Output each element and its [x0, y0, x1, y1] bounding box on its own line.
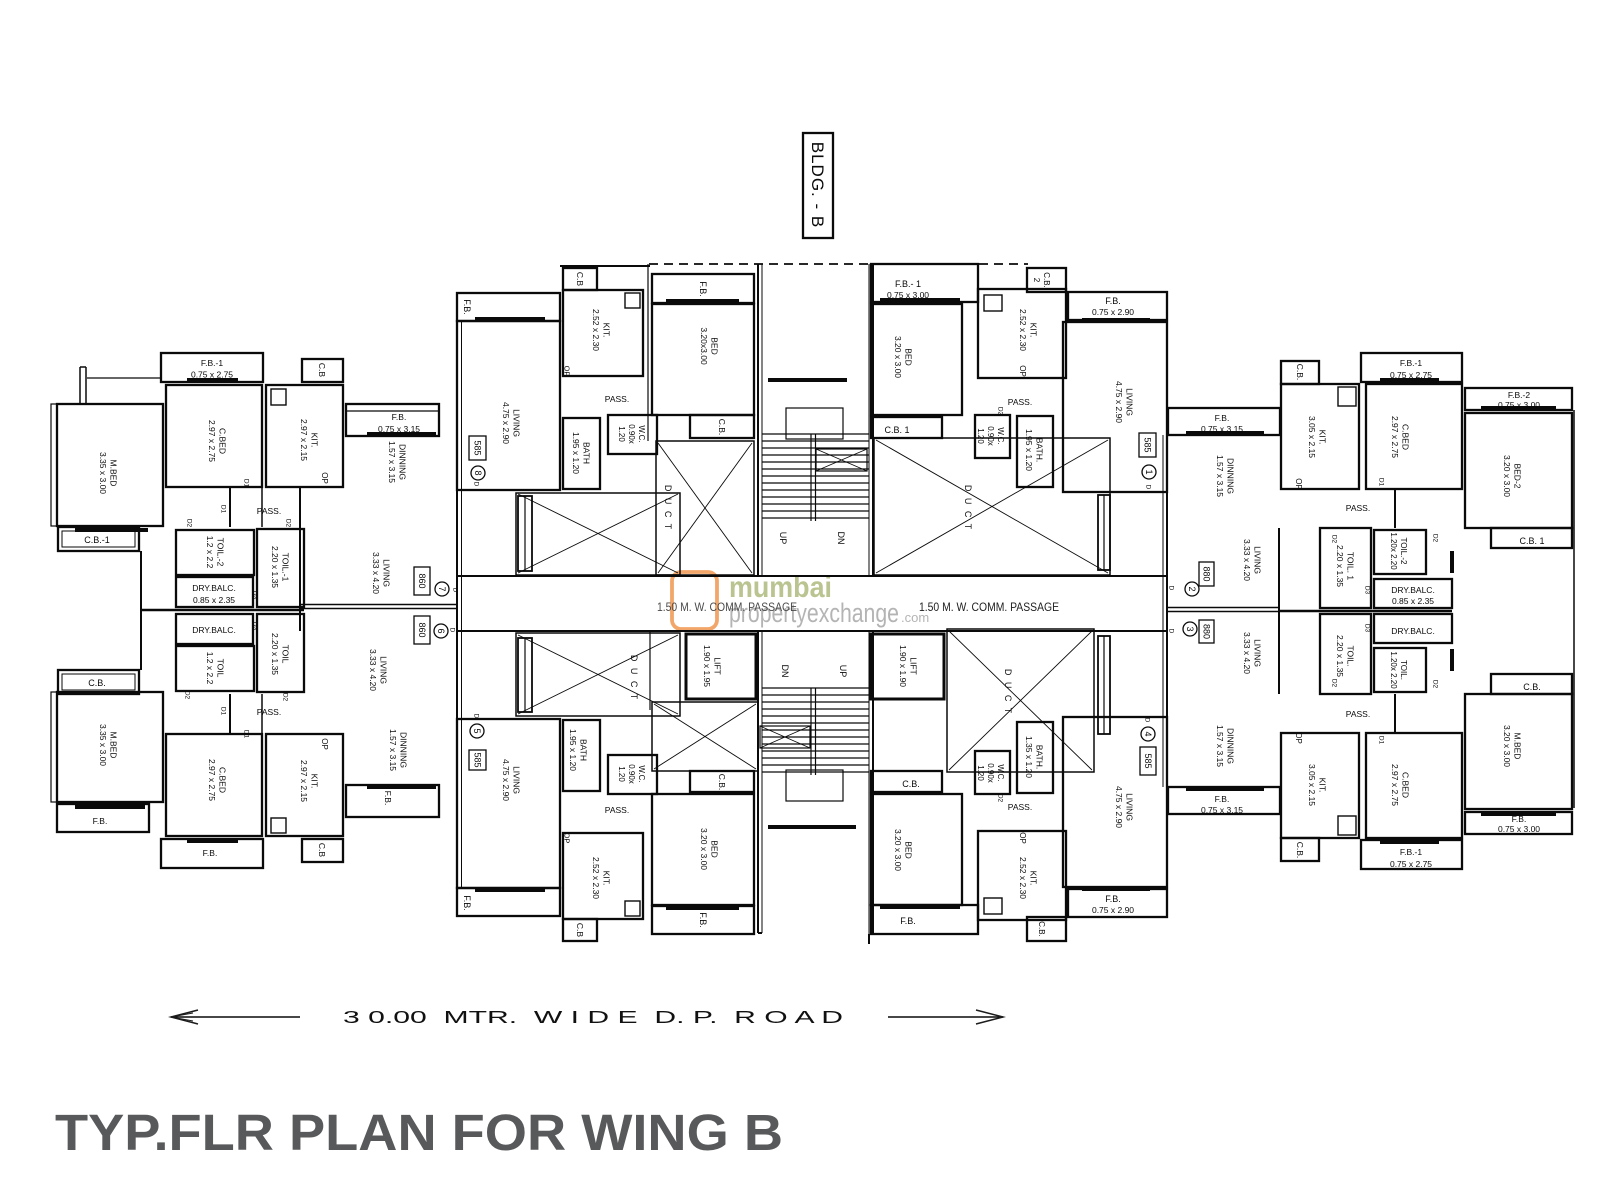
svg-text:BLDG. - B: BLDG. - B	[808, 142, 827, 228]
svg-text:0.75 x 2.75: 0.75 x 2.75	[1390, 859, 1432, 869]
svg-text:DINNING1.57 x 3.15: DINNING1.57 x 3.15	[1215, 455, 1236, 497]
svg-text:880: 880	[1201, 566, 1211, 581]
svg-text:C.B: C.B	[575, 272, 585, 287]
svg-text:W.C.0.90x1.20: W.C.0.90x1.20	[617, 764, 646, 784]
svg-text:2: 2	[1187, 586, 1197, 591]
svg-text:D: D	[1144, 718, 1151, 723]
svg-text:D2: D2	[1432, 680, 1439, 689]
svg-text:F.B.: F.B.	[462, 299, 472, 315]
svg-text:D2: D2	[186, 519, 193, 528]
svg-text:F.B.-2: F.B.-2	[1508, 390, 1530, 400]
svg-text:3: 3	[1185, 626, 1195, 631]
svg-text:DRY.BALC.: DRY.BALC.	[192, 625, 236, 635]
svg-text:D: D	[1145, 485, 1152, 490]
svg-text:D3: D3	[1364, 624, 1371, 633]
svg-text:C.B. 1: C.B. 1	[884, 425, 909, 435]
svg-text:D U C T: D U C T	[663, 485, 673, 531]
svg-text:DRY.BALC.: DRY.BALC.	[192, 583, 236, 593]
svg-text:PASS.: PASS.	[1008, 397, 1032, 407]
svg-text:C.B.: C.B.	[717, 419, 727, 436]
svg-text:C.B.: C.B.	[1295, 364, 1305, 381]
svg-text:D: D	[449, 628, 456, 633]
svg-text:D2: D2	[184, 691, 191, 700]
svg-text:PASS.: PASS.	[605, 805, 629, 815]
svg-text:D1: D1	[1378, 736, 1385, 745]
svg-text:1.50 M. W. COMM. PASSAGE: 1.50 M. W. COMM. PASSAGE	[657, 602, 797, 614]
svg-text:DINNING1.57 x 3.15: DINNING1.57 x 3.15	[388, 729, 409, 771]
svg-text:D: D	[473, 482, 480, 487]
svg-text:585: 585	[472, 440, 482, 455]
svg-text:F.B.: F.B.	[1105, 894, 1121, 904]
svg-text:C.B.: C.B.	[1295, 842, 1305, 859]
svg-text:1.50 M. W. COMM. PASSAGE: 1.50 M. W. COMM. PASSAGE	[919, 602, 1059, 614]
svg-text:C.B.: C.B.	[902, 779, 920, 789]
svg-text:F.B.: F.B.	[93, 816, 108, 826]
svg-text:OP: OP	[562, 833, 571, 844]
svg-text:0.75 x 3.00: 0.75 x 3.00	[1498, 400, 1540, 410]
svg-text:PASS.: PASS.	[1346, 503, 1370, 513]
svg-text:UP: UP	[778, 532, 788, 545]
svg-text:F.B.: F.B.	[462, 895, 472, 911]
svg-text:F.B.-1: F.B.-1	[1400, 358, 1422, 368]
svg-text:OP: OP	[320, 472, 329, 484]
svg-text:0.75 x 3.15: 0.75 x 3.15	[378, 424, 420, 434]
svg-text:F.B.: F.B.	[900, 916, 916, 926]
svg-text:C.B: C.B	[575, 923, 585, 938]
svg-text:DN: DN	[836, 532, 846, 545]
svg-text:6: 6	[436, 628, 446, 633]
svg-text:D2: D2	[1331, 679, 1338, 688]
svg-text:F.B.: F.B.	[1105, 296, 1121, 306]
svg-text:D2: D2	[282, 693, 289, 702]
svg-text:D2: D2	[285, 519, 292, 528]
svg-text:F.B.: F.B.	[698, 281, 708, 297]
svg-text:0.75 x 2.75: 0.75 x 2.75	[191, 370, 233, 380]
svg-text:C.B: C.B	[317, 843, 327, 858]
svg-text:0.85 x 2.35: 0.85 x 2.35	[1392, 596, 1434, 606]
svg-text:D2: D2	[997, 794, 1004, 803]
svg-text:F.B.: F.B.	[203, 848, 218, 858]
svg-text:D1: D1	[1378, 478, 1385, 487]
svg-text:W.C.0.90x1.20: W.C.0.90x1.20	[976, 426, 1005, 446]
svg-text:DINNING1.57 x 3.15: DINNING1.57 x 3.15	[387, 441, 408, 483]
svg-text:0.75 x 3.15: 0.75 x 3.15	[1201, 424, 1243, 434]
svg-text:PASS.: PASS.	[257, 707, 281, 717]
svg-text:0.75 x 3.00: 0.75 x 3.00	[1498, 824, 1540, 834]
svg-text:OP: OP	[562, 366, 571, 377]
svg-text:F.B.- 1: F.B.- 1	[895, 279, 921, 289]
svg-text:F.B.: F.B.	[383, 791, 393, 806]
svg-text:1: 1	[1144, 469, 1154, 474]
svg-text:8: 8	[473, 470, 483, 475]
svg-text:OP: OP	[1294, 732, 1303, 744]
svg-text:D2: D2	[997, 407, 1004, 416]
svg-text:OP: OP	[1018, 832, 1027, 844]
svg-text:860: 860	[417, 573, 427, 588]
svg-text:D1: D1	[243, 730, 250, 739]
svg-text:PASS.: PASS.	[1346, 709, 1370, 719]
svg-text:D1: D1	[220, 505, 227, 514]
svg-text:UP: UP	[838, 665, 848, 678]
svg-text:C.B. 1: C.B. 1	[1519, 536, 1544, 546]
svg-text:D1: D1	[220, 707, 227, 716]
svg-text:DINNING1.57 x 3.15: DINNING1.57 x 3.15	[1215, 725, 1236, 767]
svg-text:DRY.BALC.: DRY.BALC.	[1391, 585, 1435, 595]
svg-text:D U C T: D U C T	[963, 485, 973, 531]
svg-text:F.B.: F.B.	[392, 412, 407, 422]
svg-text:D: D	[473, 714, 480, 719]
svg-text:585: 585	[1142, 437, 1152, 452]
svg-text:7: 7	[437, 586, 447, 591]
svg-text:DRY.BALC.: DRY.BALC.	[1391, 626, 1435, 636]
svg-text:PASS.: PASS.	[257, 506, 281, 516]
svg-text:F.B.: F.B.	[1512, 814, 1527, 824]
svg-text:D2: D2	[1331, 535, 1338, 544]
svg-text:TOIL.-21.2 x 2.2: TOIL.-21.2 x 2.2	[205, 536, 226, 569]
svg-text:D U C T: D U C T	[629, 655, 639, 701]
svg-text:880: 880	[1201, 624, 1211, 639]
svg-text:C.B.: C.B.	[88, 678, 106, 688]
svg-text:PASS.: PASS.	[605, 394, 629, 404]
svg-text:F.B.: F.B.	[698, 912, 708, 928]
svg-text:D1: D1	[243, 479, 250, 488]
svg-text:W.C.0.90x1.20: W.C.0.90x1.20	[976, 763, 1005, 783]
svg-text:D U C T: D U C T	[1003, 669, 1013, 715]
svg-text:D: D	[1168, 629, 1175, 634]
svg-text:DN: DN	[780, 665, 790, 678]
svg-text:C.B.-1: C.B.-1	[84, 535, 110, 545]
svg-text:C.B.: C.B.	[1037, 921, 1046, 937]
svg-text:4: 4	[1143, 731, 1153, 736]
svg-text:F.B.: F.B.	[1215, 794, 1230, 804]
svg-text:OP: OP	[1018, 365, 1027, 377]
svg-text:860: 860	[417, 622, 427, 637]
svg-text:0.75 x 2.90: 0.75 x 2.90	[1092, 307, 1134, 317]
svg-text:TYP.FLR PLAN FOR WING B: TYP.FLR PLAN FOR WING B	[55, 1104, 783, 1161]
svg-text:585: 585	[472, 752, 482, 767]
svg-text:C.B.: C.B.	[1523, 682, 1541, 692]
svg-text:0.75 x 2.75: 0.75 x 2.75	[1390, 370, 1432, 380]
svg-text:D3: D3	[252, 622, 259, 631]
svg-text:D2: D2	[1432, 534, 1439, 543]
svg-text:D3: D3	[1364, 586, 1371, 595]
svg-text:0.75 x 3.15: 0.75 x 3.15	[1201, 805, 1243, 815]
svg-text:C.B.: C.B.	[717, 774, 727, 791]
svg-text:0.85 x 2.35: 0.85 x 2.35	[193, 595, 235, 605]
svg-text:F.B.: F.B.	[1215, 413, 1230, 423]
svg-text:D: D	[1168, 586, 1175, 591]
svg-text:PASS.: PASS.	[1008, 802, 1032, 812]
svg-text:C.B: C.B	[317, 363, 327, 378]
svg-text:585: 585	[1143, 753, 1153, 768]
svg-text:OP: OP	[320, 738, 329, 750]
svg-text:D3: D3	[252, 591, 259, 600]
svg-text:3 0.00 MTR. W I D E D. P.: 3 0.00 MTR. W I D E D. P. R O A D	[343, 1007, 843, 1027]
svg-text:F.B.-1: F.B.-1	[201, 358, 223, 368]
svg-text:5: 5	[472, 728, 482, 733]
svg-text:W.C.0.90x1.20: W.C.0.90x1.20	[617, 424, 646, 444]
svg-text:0.75 x 2.90: 0.75 x 2.90	[1092, 905, 1134, 915]
svg-text:OP: OP	[1294, 478, 1303, 490]
svg-text:F.B.-1: F.B.-1	[1400, 847, 1422, 857]
